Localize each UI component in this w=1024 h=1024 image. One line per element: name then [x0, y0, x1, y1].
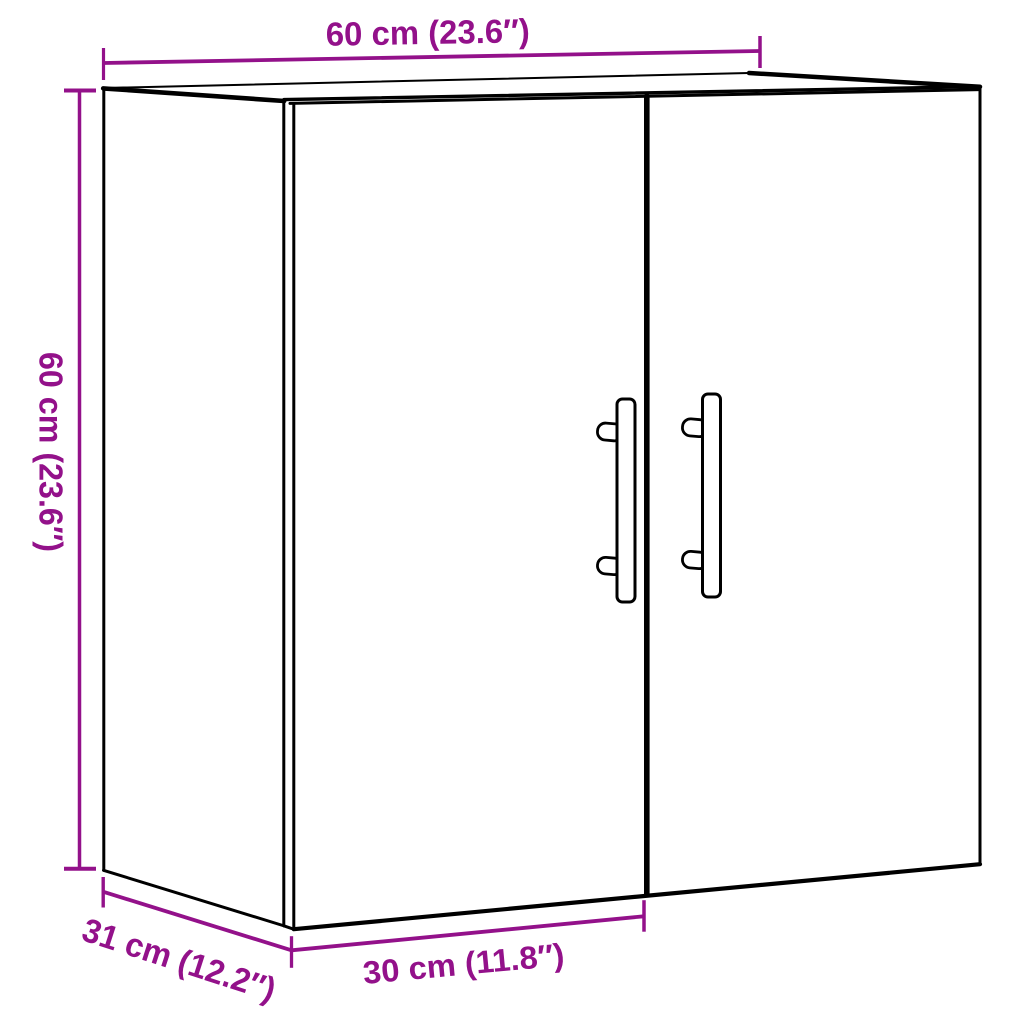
svg-text:30 cm (11.8″): 30 cm (11.8″) [361, 936, 565, 991]
svg-text:60 cm (23.6″): 60 cm (23.6″) [326, 13, 531, 54]
svg-text:60 cm (23.6″): 60 cm (23.6″) [32, 352, 69, 552]
svg-text:31 cm (12.2″): 31 cm (12.2″) [78, 912, 281, 1009]
